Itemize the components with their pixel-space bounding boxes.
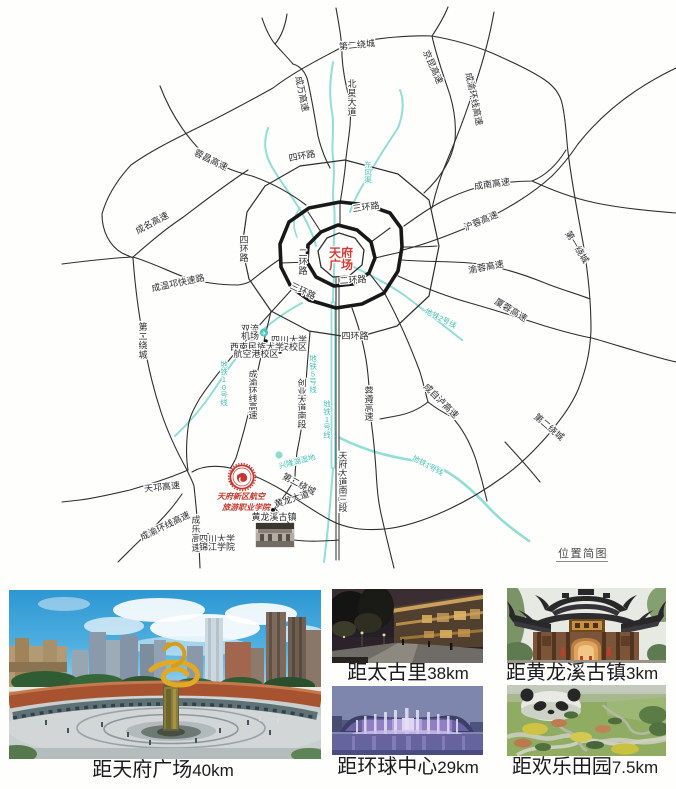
svg-text:蓉遵高速: 蓉遵高速	[364, 385, 373, 422]
svg-text:四环路: 四环路	[288, 148, 317, 164]
svg-text:厦蓉高速: 厦蓉高速	[493, 296, 530, 324]
svg-text:天邛高速: 天邛高速	[143, 479, 180, 494]
svg-text:四环路: 四环路	[341, 330, 368, 341]
svg-text:三环路: 三环路	[289, 280, 318, 302]
svg-text:第二绕城: 第二绕城	[138, 321, 147, 360]
svg-text:渝蓉高速: 渝蓉高速	[467, 258, 504, 276]
svg-text:广场: 广场	[329, 257, 353, 272]
svg-text:三环路: 三环路	[352, 199, 380, 214]
svg-text:京昆高速: 京昆高速	[421, 48, 446, 85]
svg-text:沪蓉高速: 沪蓉高速	[462, 208, 499, 232]
svg-text:北星大道: 北星大道	[347, 79, 356, 117]
svg-text:成万高速: 成万高速	[293, 75, 311, 113]
svg-text:成名高速: 成名高速	[133, 209, 170, 236]
svg-text:第一绕城: 第一绕城	[563, 229, 591, 265]
svg-text:创业大道南段: 创业大道南段	[297, 378, 306, 430]
svg-text:二环路: 二环路	[339, 273, 367, 286]
svg-text:第二绕城: 第二绕城	[532, 411, 567, 443]
svg-text:四环路: 四环路	[239, 235, 248, 263]
svg-text:地铁2号线: 地铁2号线	[424, 306, 459, 331]
svg-text:航空港校区: 航空港校区	[233, 348, 278, 359]
svg-text:黄龙大道: 黄龙大道	[273, 488, 311, 510]
svg-text:地铁10号线: 地铁10号线	[220, 359, 228, 407]
svg-text:锦江学院: 锦江学院	[199, 541, 235, 552]
svg-text:成渝环线高速: 成渝环线高速	[463, 71, 485, 126]
svg-text:机场: 机场	[241, 330, 259, 341]
svg-text:成南高速: 成南高速	[473, 176, 510, 192]
svg-text:二环路: 二环路	[298, 248, 307, 276]
svg-text:蓉昌高速: 蓉昌高速	[193, 147, 230, 173]
svg-text:成渝环线高速: 成渝环线高速	[248, 369, 257, 421]
svg-text:黄龙溪古镇: 黄龙溪古镇	[251, 511, 296, 522]
svg-text:天府新区航空: 天府新区航空	[217, 491, 267, 501]
svg-text:地铁1号线: 地铁1号线	[411, 453, 446, 478]
svg-text:位置简图: 位置简图	[558, 546, 608, 560]
svg-text:第二绕城: 第二绕城	[338, 37, 375, 52]
svg-text:旅游职业学院: 旅游职业学院	[221, 502, 272, 512]
svg-text:成渝环线高速: 成渝环线高速	[138, 509, 191, 543]
svg-text:天府大道南三段: 天府大道南三段	[338, 451, 347, 513]
svg-text:✈: ✈	[261, 331, 267, 338]
svg-text:东风渠: 东风渠	[364, 159, 372, 184]
svg-text:地铁5号线: 地铁5号线	[309, 353, 317, 394]
svg-text:地铁1号线: 地铁1号线	[323, 399, 331, 440]
